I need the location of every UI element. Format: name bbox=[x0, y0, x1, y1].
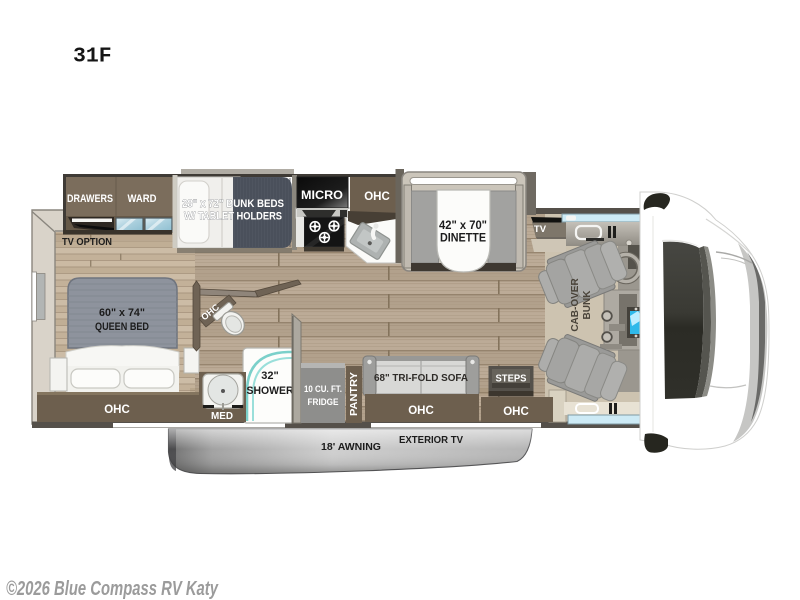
svg-text:68" TRI-FOLD SOFA: 68" TRI-FOLD SOFA bbox=[374, 373, 468, 384]
svg-text:MICRO: MICRO bbox=[301, 190, 343, 202]
svg-text:31F: 31F bbox=[73, 45, 112, 69]
svg-text:28" x 72" BUNK BEDS: 28" x 72" BUNK BEDS bbox=[182, 198, 284, 210]
svg-text:WARD: WARD bbox=[128, 193, 157, 205]
svg-text:60" x 74": 60" x 74" bbox=[99, 307, 145, 319]
svg-text:CAB-OVER: CAB-OVER bbox=[570, 278, 581, 332]
svg-text:DINETTE: DINETTE bbox=[440, 233, 486, 245]
svg-text:32": 32" bbox=[261, 370, 278, 382]
svg-text:TV: TV bbox=[534, 224, 547, 235]
svg-text:©2026 Blue Compass RV Katy: ©2026 Blue Compass RV Katy bbox=[6, 578, 219, 600]
svg-text:EXTERIOR TV: EXTERIOR TV bbox=[399, 435, 463, 446]
svg-text:FRIDGE: FRIDGE bbox=[308, 397, 339, 408]
svg-text:18' AWNING: 18' AWNING bbox=[321, 442, 381, 453]
svg-text:STEPS: STEPS bbox=[496, 374, 527, 385]
svg-text:TV OPTION: TV OPTION bbox=[62, 236, 112, 248]
svg-text:OHC: OHC bbox=[503, 406, 529, 418]
svg-text:MED: MED bbox=[211, 410, 233, 422]
svg-text:DRAWERS: DRAWERS bbox=[67, 193, 113, 205]
svg-text:42" x 70": 42" x 70" bbox=[439, 220, 487, 232]
svg-text:QUEEN BED: QUEEN BED bbox=[95, 321, 149, 333]
svg-text:OHC: OHC bbox=[104, 404, 130, 416]
svg-text:OHC: OHC bbox=[408, 405, 434, 417]
svg-text:PANTRY: PANTRY bbox=[349, 372, 360, 416]
svg-text:W/ TABLET HOLDERS: W/ TABLET HOLDERS bbox=[184, 211, 282, 223]
svg-text:OHC: OHC bbox=[364, 191, 390, 203]
svg-text:BUNK: BUNK bbox=[582, 290, 593, 320]
svg-text:10 CU. FT.: 10 CU. FT. bbox=[304, 384, 342, 395]
svg-text:SHOWER: SHOWER bbox=[247, 385, 294, 397]
